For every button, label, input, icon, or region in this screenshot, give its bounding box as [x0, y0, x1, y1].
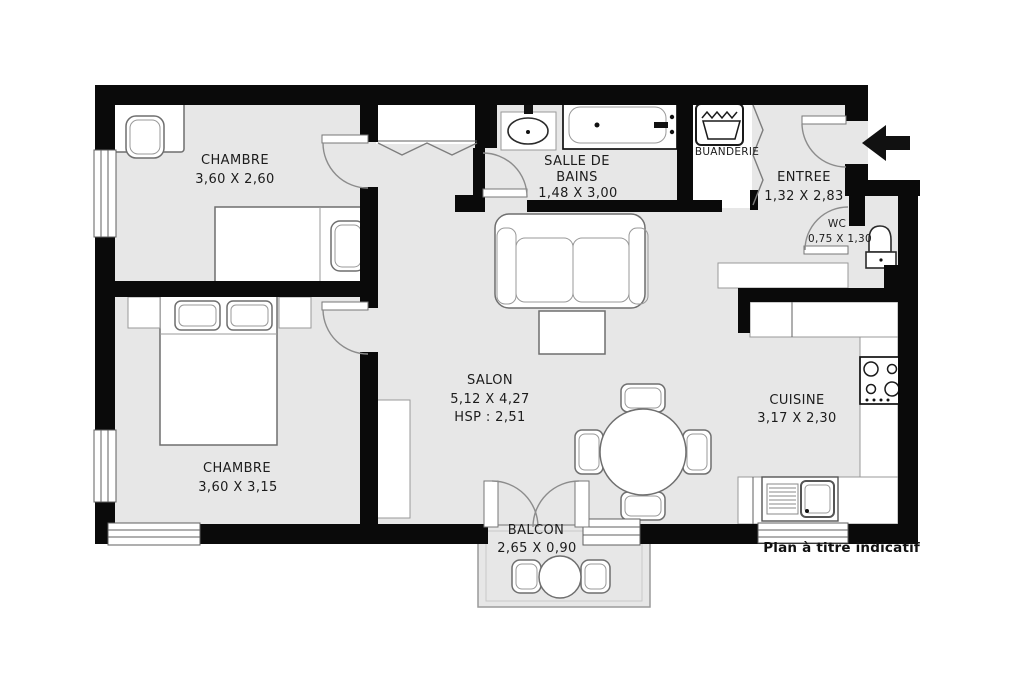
label-balcon-dims: 2,65 X 0,90 [497, 541, 576, 556]
window-living-room [583, 519, 640, 545]
wall-wc-top [845, 180, 920, 196]
laundry-tub-icon [703, 121, 740, 139]
tub-drain-dot [595, 123, 600, 128]
coffee-table-icon [539, 311, 605, 354]
label-wc-dims: 0,75 X 1,30 [808, 233, 872, 245]
label-salon-dims: 5,12 X 4,27 [450, 392, 529, 407]
sideboard-icon [377, 400, 410, 518]
wall-entry-corner [845, 85, 868, 121]
label-chambre-top-dims: 3,60 X 2,60 [195, 172, 274, 187]
label-buanderie: BUANDERIE [695, 146, 759, 158]
balcony-table-icon [539, 556, 581, 598]
tub-tap-dot-2 [670, 130, 674, 134]
hall-closet-interior [376, 100, 477, 144]
wall-between-bedrooms [95, 281, 378, 297]
wall-bath-stub [455, 195, 485, 212]
basin-drain-dot [526, 130, 530, 134]
floor-plan: CHAMBRE 3,60 X 2,60 CHAMBRE 3,60 X 3,15 … [0, 0, 1024, 683]
label-salon-hsp: HSP : 2,51 [454, 410, 525, 425]
label-sdb-line2: BAINS [556, 170, 598, 185]
kitchen-drain-dot [805, 509, 809, 513]
label-entree-name: ENTREE [777, 170, 831, 185]
label-balcon-name: BALCON [508, 523, 565, 538]
label-salon-name: SALON [467, 373, 513, 388]
laundry-closet [696, 104, 743, 145]
wall-wc-jamb [849, 196, 865, 226]
label-sdb-line1: SALLE DE [544, 154, 610, 169]
floor-plan-svg: CHAMBRE 3,60 X 2,60 CHAMBRE 3,60 X 3,15 … [0, 0, 1024, 683]
dining-table-icon [600, 409, 686, 495]
wall-right [898, 180, 918, 544]
bathroom-fixtures [501, 101, 677, 150]
label-entree-dims: 1,32 X 2,83 [764, 189, 843, 204]
wall-bedrooms-c [360, 352, 378, 524]
kitchen-counter-top [750, 302, 898, 337]
basin-faucet-icon [524, 105, 533, 114]
toilet-button-dot [879, 258, 882, 261]
window-bedroom-top [94, 150, 116, 237]
nightstand-right-icon [279, 297, 311, 328]
toilet-bowl-icon [869, 226, 891, 252]
label-chambre-bottom-name: CHAMBRE [203, 461, 271, 476]
balcony-furniture [512, 556, 610, 598]
wall-kitchen-top [738, 288, 918, 302]
window-bedroom-bottom [108, 523, 200, 545]
wall-bedrooms-a [360, 85, 378, 142]
stove-knob-3 [880, 399, 883, 402]
sofa-icon [495, 214, 645, 308]
tub-faucet-icon [654, 122, 668, 128]
label-cuisine-dims: 3,17 X 2,30 [757, 411, 836, 426]
entry-console-icon [718, 263, 848, 288]
label-cuisine-name: CUISINE [769, 393, 824, 408]
label-chambre-top-name: CHAMBRE [201, 153, 269, 168]
label-chambre-bottom-dims: 3,60 X 3,15 [198, 480, 277, 495]
stove-knob-2 [873, 399, 876, 402]
entrance-arrow-icon [862, 125, 910, 161]
wall-bath-laundry [677, 85, 693, 212]
stove-knob-1 [866, 399, 869, 402]
label-sdb-dims: 1,48 X 3,00 [538, 186, 617, 201]
wall-closet-bath [475, 85, 497, 148]
window-bedroom-bottom-left [94, 430, 116, 502]
label-wc-name: WC [828, 218, 846, 230]
tub-tap-dot-1 [670, 115, 674, 119]
footer-disclaimer: Plan à titre indicatif [763, 540, 920, 556]
stove-knob-4 [887, 399, 890, 402]
wall-laundry-jamb [750, 190, 758, 210]
nightstand-left-icon [128, 297, 160, 328]
wall-kitchen-stub [738, 288, 750, 333]
